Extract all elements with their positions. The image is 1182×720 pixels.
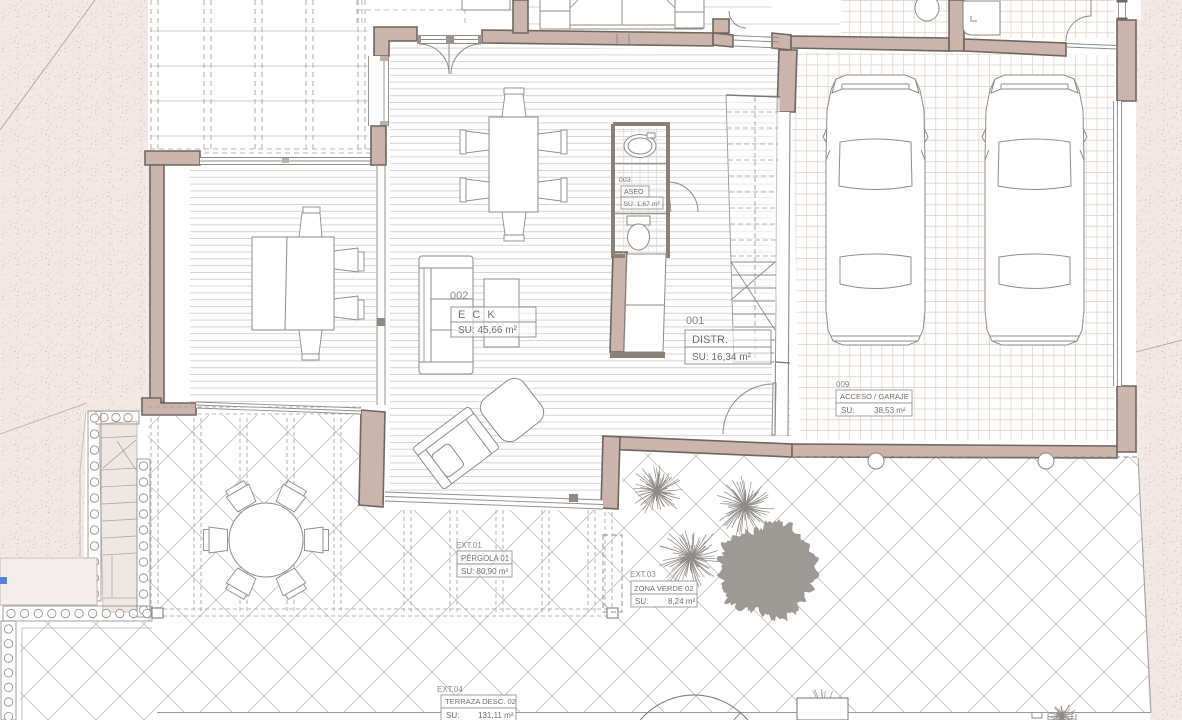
svg-text:SU: 16,34 m²: SU: 16,34 m² xyxy=(692,352,752,363)
svg-text:003: 003 xyxy=(619,177,631,184)
svg-text:ACCESO / GARAJE: ACCESO / GARAJE xyxy=(840,392,909,401)
svg-text:E C K: E C K xyxy=(458,309,497,321)
svg-text:ASEO: ASEO xyxy=(624,189,644,196)
svg-text:SU: 1,67 m²: SU: 1,67 m² xyxy=(624,201,661,208)
svg-text:TERRAZA DESC. 02: TERRAZA DESC. 02 xyxy=(445,697,516,706)
svg-text:38,53 m²: 38,53 m² xyxy=(874,406,906,415)
svg-text:EXT.01: EXT.01 xyxy=(456,541,482,550)
svg-text:8,24 m²: 8,24 m² xyxy=(668,597,695,606)
svg-text:EXT.03: EXT.03 xyxy=(630,570,656,579)
svg-text:131,11 m²: 131,11 m² xyxy=(478,711,514,720)
svg-text:SU: 80,90 m²: SU: 80,90 m² xyxy=(461,567,508,576)
svg-text:PÉRGOLA 01: PÉRGOLA 01 xyxy=(461,554,509,563)
svg-text:SU:: SU: xyxy=(635,597,648,606)
svg-text:ZONA VERDE 02: ZONA VERDE 02 xyxy=(634,584,694,593)
svg-text:009: 009 xyxy=(836,380,850,389)
svg-text:001: 001 xyxy=(686,315,704,327)
svg-text:SU: 45,66 m²: SU: 45,66 m² xyxy=(458,325,518,336)
svg-text:EXT.04: EXT.04 xyxy=(437,685,463,694)
svg-text:DISTR.: DISTR. xyxy=(692,334,728,346)
svg-text:002: 002 xyxy=(450,290,468,302)
svg-text:SU:: SU: xyxy=(841,406,854,415)
svg-text:SU:: SU: xyxy=(446,711,459,720)
